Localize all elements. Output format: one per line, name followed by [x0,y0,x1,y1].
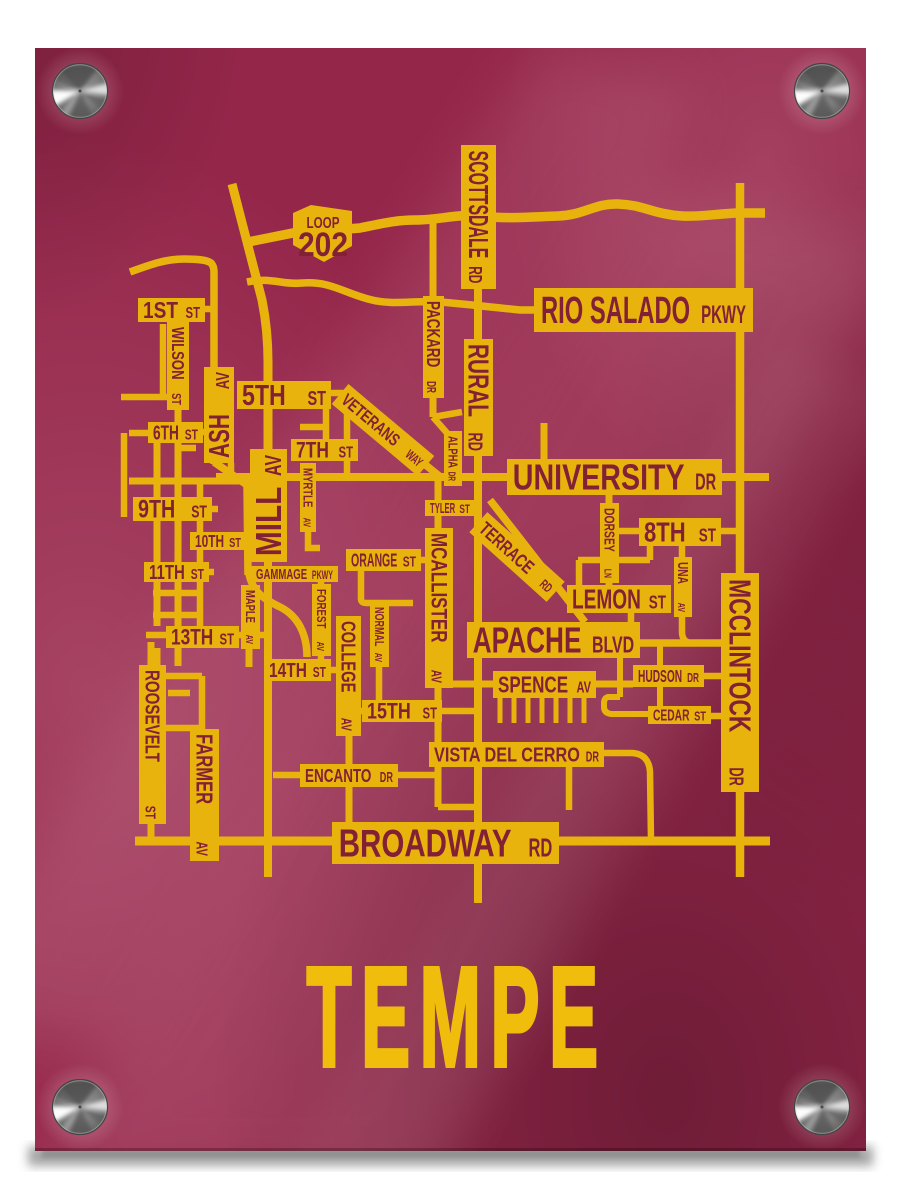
svg-text:7TH: 7TH [296,438,329,463]
svg-text:RD: RD [529,833,553,863]
svg-text:AV: AV [301,518,312,527]
svg-text:AV: AV [338,718,354,731]
svg-text:TYLER: TYLER [430,501,455,517]
svg-text:MILL: MILL [248,487,289,556]
svg-text:ST: ST [308,388,327,410]
svg-text:AV: AV [243,635,254,644]
svg-text:AV: AV [193,842,210,857]
svg-text:ST: ST [423,706,438,723]
svg-text:DR: DR [586,750,600,766]
svg-text:TEMPE: TEMPE [307,938,608,1097]
svg-text:BLVD: BLVD [592,632,634,658]
svg-text:BROADWAY: BROADWAY [339,823,512,866]
svg-text:ENCANTO: ENCANTO [305,766,371,787]
svg-text:ST: ST [186,305,201,322]
svg-text:PKWY: PKWY [312,569,333,582]
svg-text:APACHE: APACHE [473,620,582,661]
svg-text:8TH: 8TH [644,517,686,548]
svg-text:ST: ST [191,502,207,522]
svg-text:COLLEGE: COLLEGE [337,621,359,693]
svg-text:RD: RD [464,433,486,452]
svg-text:ST: ST [339,445,354,462]
svg-text:13TH: 13TH [171,625,213,650]
svg-text:ST: ST [191,567,204,583]
svg-text:ST: ST [699,526,717,547]
svg-text:LN: LN [602,569,613,578]
svg-text:FOREST: FOREST [314,589,329,628]
svg-text:11TH: 11TH [149,562,185,584]
svg-text:RURAL: RURAL [462,344,494,417]
svg-text:SCOTTSDALE: SCOTTSDALE [463,151,494,259]
svg-text:DR: DR [695,469,716,495]
svg-text:UNIVERSITY: UNIVERSITY [513,457,685,498]
svg-text:AV: AV [314,642,325,651]
svg-text:HUDSON: HUDSON [638,666,682,686]
svg-text:15TH: 15TH [367,699,411,724]
svg-text:ASH: ASH [204,414,236,458]
svg-text:AV: AV [428,670,444,683]
svg-text:MCALLISTER: MCALLISTER [427,533,452,643]
svg-text:DORSEY: DORSEY [601,508,617,552]
svg-text:FARMER: FARMER [192,734,218,804]
svg-text:ST: ST [142,806,158,819]
svg-text:AV: AV [675,603,686,612]
svg-text:ST: ST [313,665,326,681]
svg-text:6TH: 6TH [153,423,179,445]
svg-text:10TH: 10TH [195,531,224,551]
svg-text:ST: ST [459,503,470,516]
svg-text:GAMMAGE: GAMMAGE [256,567,307,583]
svg-text:UNA: UNA [674,562,690,584]
svg-text:ST: ST [220,632,235,649]
svg-text:5TH: 5TH [242,380,286,412]
svg-text:MAPLE: MAPLE [243,590,258,623]
svg-text:ST: ST [649,593,667,614]
svg-text:AV: AV [260,455,286,476]
svg-text:SPENCE: SPENCE [498,672,568,698]
svg-text:ST: ST [403,555,416,571]
svg-text:MCCLINTOCK: MCCLINTOCK [723,579,757,732]
svg-text:DR: DR [424,381,439,393]
svg-text:RD: RD [464,266,485,283]
svg-text:ST: ST [229,535,241,550]
svg-text:ST: ST [694,709,706,724]
svg-text:RIO SALADO: RIO SALADO [541,290,690,332]
svg-text:AV: AV [213,372,234,389]
svg-text:DR: DR [687,670,699,685]
svg-text:DR: DR [446,472,457,482]
svg-text:DR: DR [380,770,394,786]
svg-text:VISTA DEL CERRO: VISTA DEL CERRO [434,745,580,767]
svg-text:ROOSEVELT: ROOSEVELT [141,670,163,762]
svg-text:AV: AV [372,653,383,662]
svg-text:ST: ST [185,428,198,444]
svg-text:WILSON: WILSON [168,327,188,380]
svg-text:PACKARD: PACKARD [422,301,443,367]
svg-text:AV: AV [577,680,592,697]
svg-text:ORANGE: ORANGE [351,551,397,572]
svg-text:NORMAL: NORMAL [372,607,387,646]
svg-text:14TH: 14TH [269,660,307,682]
svg-text:9TH: 9TH [138,497,175,524]
svg-text:MYRTLE: MYRTLE [301,468,316,508]
svg-text:202: 202 [298,226,348,264]
svg-text:ST: ST [169,393,184,405]
svg-text:1ST: 1ST [143,297,178,323]
svg-text:PKWY: PKWY [701,302,746,329]
svg-text:DR: DR [725,767,747,786]
svg-text:CEDAR: CEDAR [653,708,690,725]
svg-text:LEMON: LEMON [572,584,641,615]
svg-text:ALPHA: ALPHA [446,436,461,468]
